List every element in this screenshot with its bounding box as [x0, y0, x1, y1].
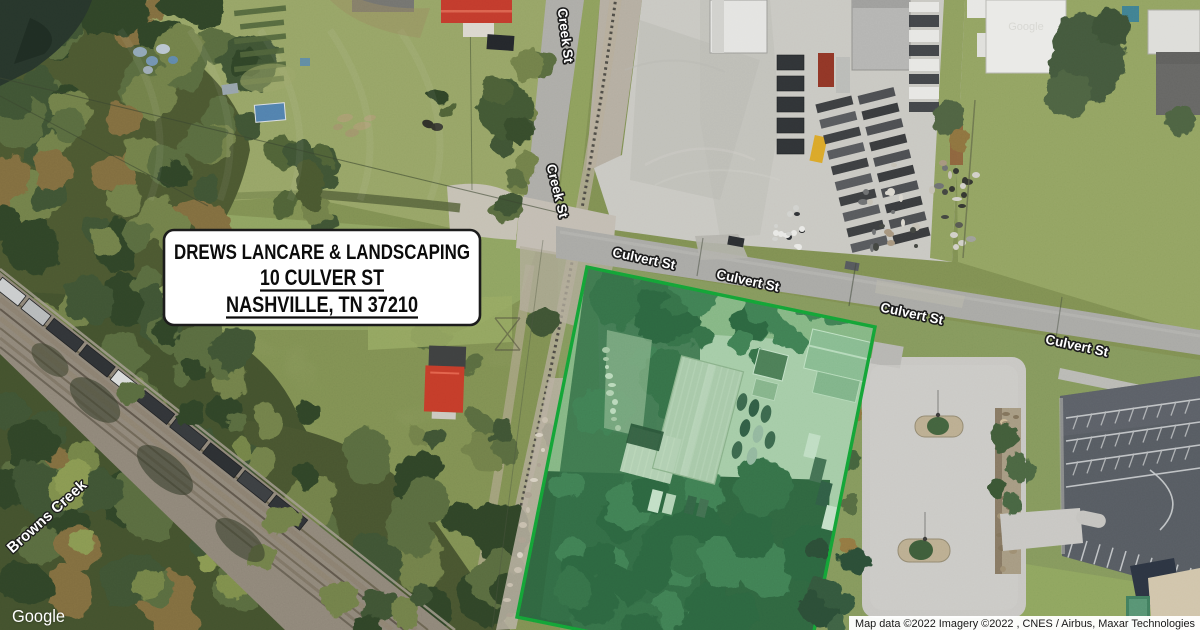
- svg-text:Map data ©2022 Imagery ©2022 ,: Map data ©2022 Imagery ©2022 , CNES / Ai…: [855, 618, 1195, 630]
- svg-text:Google: Google: [12, 606, 65, 626]
- svg-text:10 CULVER ST: 10 CULVER ST: [260, 265, 384, 290]
- svg-text:NASHVILLE, TN 37210: NASHVILLE, TN 37210: [226, 292, 418, 317]
- svg-text:DREWS LANCARE & LANDSCAPING: DREWS LANCARE & LANDSCAPING: [174, 240, 470, 264]
